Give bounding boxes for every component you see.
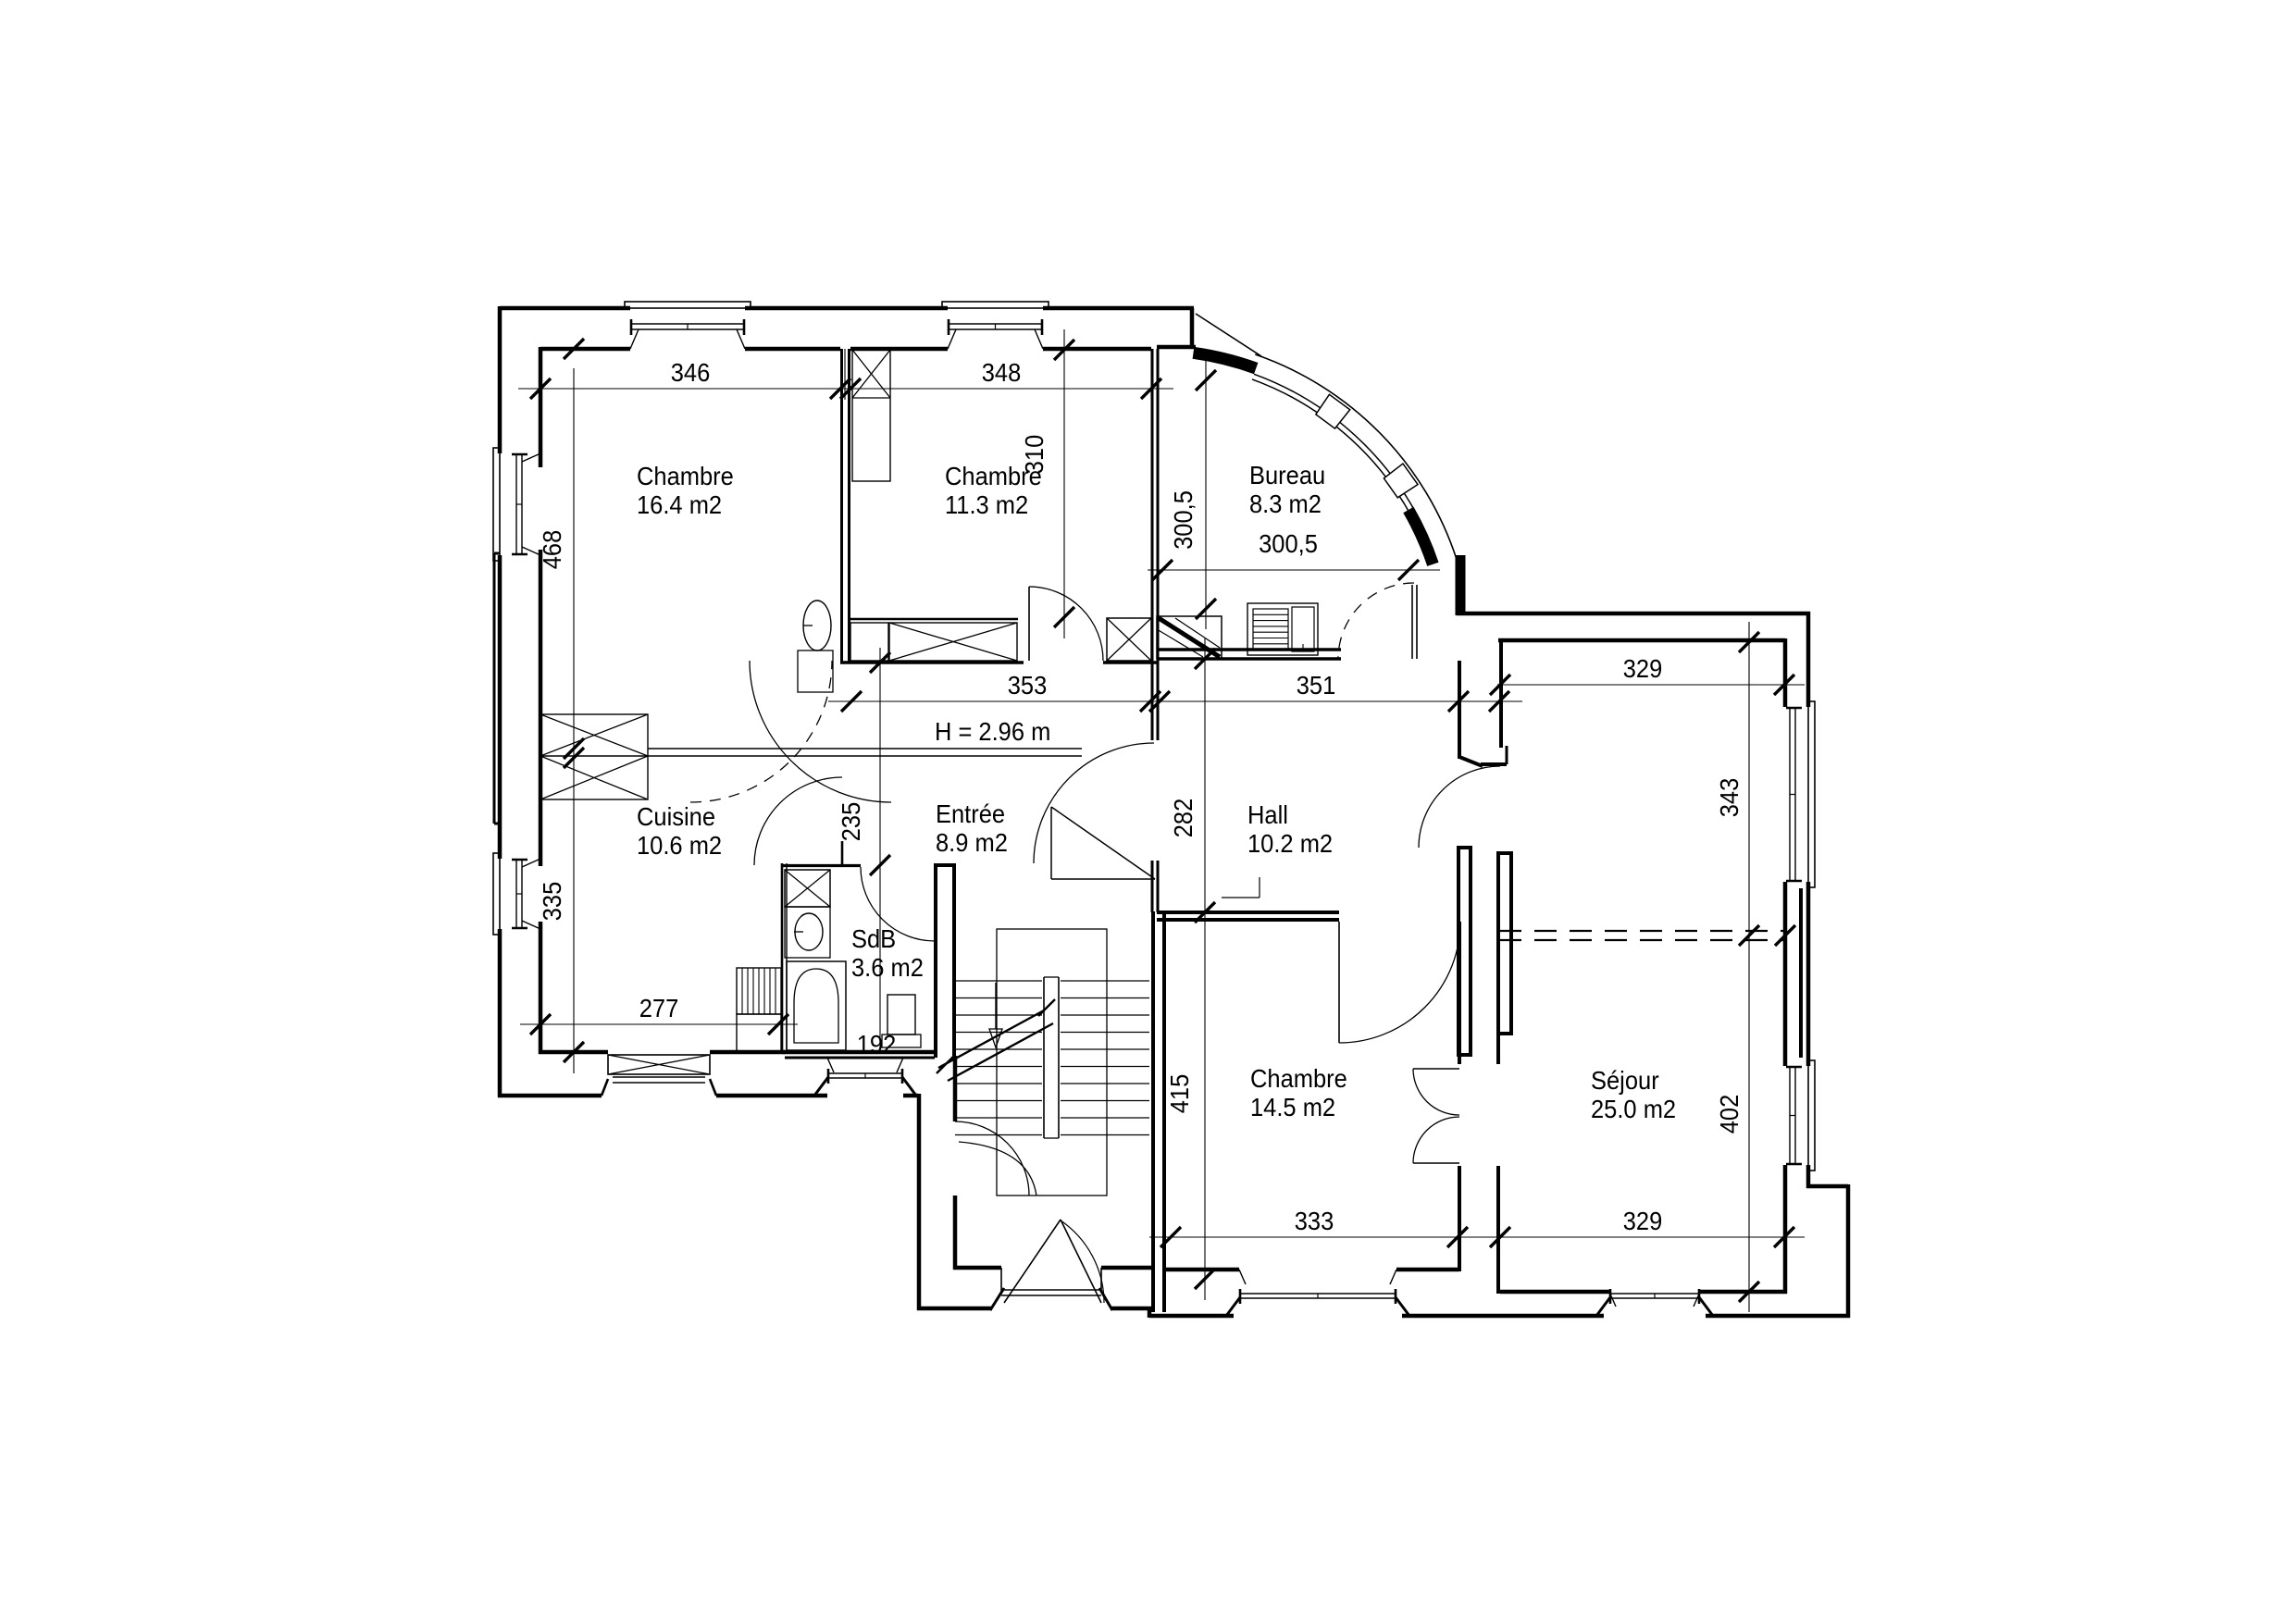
svg-text:16.4 m2: 16.4 m2 xyxy=(637,490,722,519)
svg-text:Entrée: Entrée xyxy=(936,799,1005,828)
svg-text:10.6 m2: 10.6 m2 xyxy=(637,831,722,860)
svg-text:348: 348 xyxy=(982,358,1022,387)
svg-text:235: 235 xyxy=(837,802,865,842)
svg-text:282: 282 xyxy=(1169,799,1198,838)
svg-text:192: 192 xyxy=(857,1030,897,1059)
svg-text:8.9 m2: 8.9 m2 xyxy=(936,828,1008,857)
svg-text:11.3 m2: 11.3 m2 xyxy=(945,490,1028,519)
svg-text:25.0 m2: 25.0 m2 xyxy=(1591,1095,1676,1123)
svg-text:353: 353 xyxy=(1008,671,1048,700)
svg-text:329: 329 xyxy=(1623,654,1663,683)
svg-text:346: 346 xyxy=(671,358,711,387)
svg-text:14.5 m2: 14.5 m2 xyxy=(1250,1093,1335,1121)
svg-text:329: 329 xyxy=(1623,1207,1663,1235)
svg-text:415: 415 xyxy=(1165,1074,1194,1114)
svg-text:10.2 m2: 10.2 m2 xyxy=(1247,829,1333,858)
svg-text:Chambre: Chambre xyxy=(945,462,1042,490)
svg-text:300,5: 300,5 xyxy=(1259,529,1318,558)
svg-text:Hall: Hall xyxy=(1247,800,1288,829)
svg-text:277: 277 xyxy=(639,994,679,1022)
svg-text:H = 2.96 m: H = 2.96 m xyxy=(935,717,1050,746)
svg-text:Séjour: Séjour xyxy=(1591,1066,1659,1095)
svg-text:Bureau: Bureau xyxy=(1249,461,1325,489)
svg-text:351: 351 xyxy=(1297,671,1336,700)
svg-text:468: 468 xyxy=(538,530,566,570)
svg-text:Chambre: Chambre xyxy=(637,462,734,490)
svg-text:333: 333 xyxy=(1295,1207,1334,1235)
svg-text:8.3 m2: 8.3 m2 xyxy=(1249,489,1322,518)
svg-text:3.6 m2: 3.6 m2 xyxy=(851,953,924,982)
svg-text:335: 335 xyxy=(538,882,566,922)
svg-text:Cuisine: Cuisine xyxy=(637,802,715,831)
svg-text:SdB: SdB xyxy=(851,924,896,953)
svg-text:402: 402 xyxy=(1715,1095,1744,1134)
svg-text:Chambre: Chambre xyxy=(1250,1064,1347,1093)
svg-text:343: 343 xyxy=(1715,778,1744,818)
svg-text:300,5: 300,5 xyxy=(1169,490,1198,550)
